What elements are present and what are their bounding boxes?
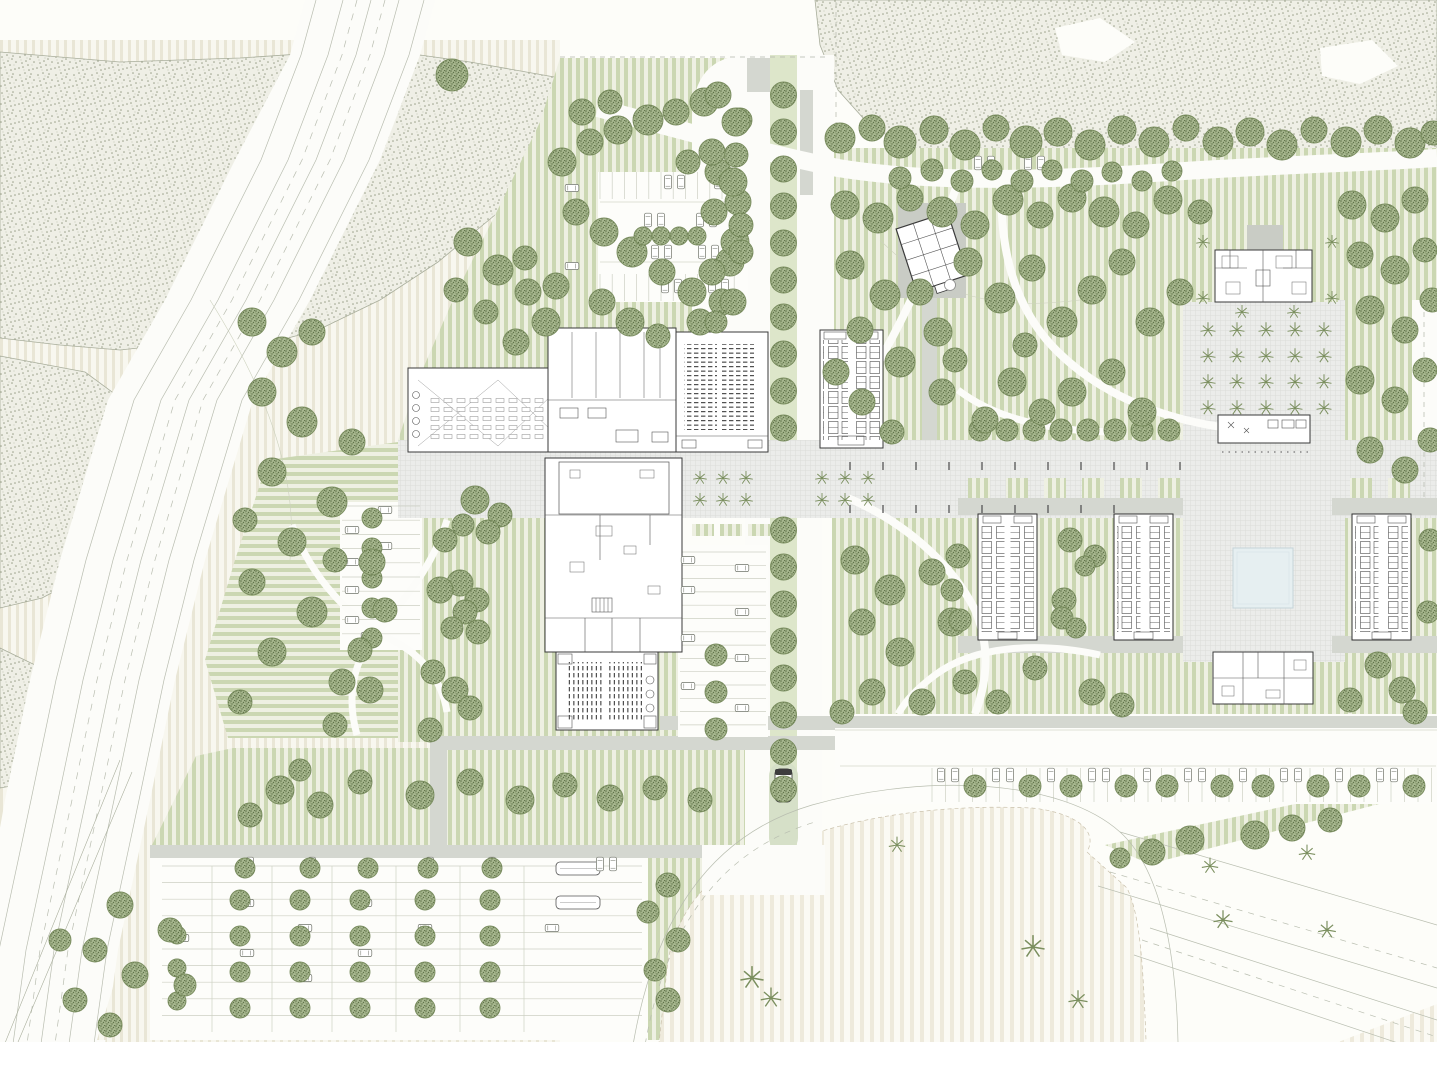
seating-block bbox=[721, 344, 754, 430]
tree bbox=[1110, 693, 1134, 717]
tree bbox=[362, 508, 382, 528]
tree bbox=[1252, 775, 1274, 797]
tree bbox=[174, 974, 196, 996]
tree bbox=[985, 283, 1015, 313]
tree bbox=[83, 938, 107, 962]
tree bbox=[1365, 652, 1391, 678]
tree bbox=[1079, 679, 1105, 705]
hedge bbox=[1044, 478, 1066, 498]
tree bbox=[646, 324, 670, 348]
tree bbox=[705, 718, 727, 740]
parked-car bbox=[937, 768, 944, 782]
parked-car bbox=[1047, 768, 1054, 782]
tree bbox=[1011, 170, 1033, 192]
tree bbox=[886, 638, 914, 666]
canteen-building bbox=[545, 458, 682, 652]
tree bbox=[553, 773, 577, 797]
site-plan-canvas bbox=[0, 0, 1437, 1080]
bench-hedge bbox=[720, 524, 742, 536]
parked-car bbox=[596, 857, 603, 871]
tree bbox=[348, 638, 372, 662]
parked-car bbox=[1198, 768, 1205, 782]
tree bbox=[597, 785, 623, 811]
tree bbox=[633, 105, 663, 135]
tree bbox=[317, 487, 347, 517]
tree bbox=[1167, 279, 1193, 305]
tree bbox=[515, 279, 541, 305]
tree bbox=[299, 319, 325, 345]
plaza-pavilion bbox=[1218, 415, 1310, 443]
tree bbox=[258, 638, 286, 666]
tree bbox=[722, 108, 750, 136]
parked-car bbox=[664, 245, 671, 259]
parked-car bbox=[609, 857, 616, 871]
tree bbox=[616, 308, 644, 336]
masterplan-drawing bbox=[0, 0, 1437, 1080]
tree bbox=[329, 669, 355, 695]
parked-car bbox=[651, 245, 658, 259]
tree bbox=[307, 792, 333, 818]
tree bbox=[771, 230, 797, 256]
tree bbox=[688, 788, 712, 812]
tree bbox=[427, 577, 453, 603]
tree bbox=[1013, 333, 1037, 357]
tree bbox=[323, 548, 347, 572]
parked-car bbox=[1143, 768, 1150, 782]
tree bbox=[943, 348, 967, 372]
tree bbox=[444, 278, 468, 302]
tree bbox=[290, 926, 310, 946]
tree bbox=[1241, 821, 1269, 849]
tree bbox=[859, 679, 885, 705]
parked-car bbox=[1294, 768, 1301, 782]
tree bbox=[466, 620, 490, 644]
parked-car bbox=[1006, 768, 1013, 782]
tree bbox=[656, 873, 680, 897]
tree bbox=[705, 681, 727, 703]
tree bbox=[919, 559, 945, 585]
tree bbox=[230, 926, 250, 946]
parked-car bbox=[345, 586, 359, 593]
workbench-rows bbox=[428, 398, 566, 442]
tree bbox=[482, 858, 502, 878]
tree bbox=[954, 248, 982, 276]
tree bbox=[1050, 419, 1072, 441]
tree bbox=[248, 378, 276, 406]
swimming-pool bbox=[1233, 548, 1293, 608]
tree bbox=[676, 150, 700, 174]
tree bbox=[637, 901, 659, 923]
tree bbox=[1075, 556, 1095, 576]
tree bbox=[1413, 358, 1437, 382]
tree bbox=[563, 199, 589, 225]
seating-block bbox=[684, 344, 717, 430]
tree bbox=[480, 998, 500, 1018]
tree bbox=[705, 644, 727, 666]
tree bbox=[290, 962, 310, 982]
tree bbox=[1348, 775, 1370, 797]
tree bbox=[1371, 204, 1399, 232]
tree bbox=[441, 617, 463, 639]
parked-car bbox=[1280, 768, 1287, 782]
tree bbox=[983, 115, 1009, 141]
tree bbox=[998, 368, 1026, 396]
tree bbox=[483, 255, 513, 285]
tree bbox=[1392, 457, 1418, 483]
parked-car bbox=[240, 949, 254, 956]
parked-car bbox=[735, 654, 749, 661]
tree bbox=[598, 90, 622, 114]
tree bbox=[350, 890, 370, 910]
tree bbox=[849, 609, 875, 635]
tree bbox=[1019, 255, 1045, 281]
parked-car bbox=[681, 634, 695, 641]
tree bbox=[373, 598, 397, 622]
tree bbox=[909, 689, 935, 715]
parked-car bbox=[644, 213, 651, 227]
tree bbox=[1301, 117, 1327, 143]
tree bbox=[996, 419, 1018, 441]
tree bbox=[1128, 398, 1156, 426]
tree bbox=[258, 458, 286, 486]
tree bbox=[323, 713, 347, 737]
tree bbox=[720, 289, 746, 315]
tree bbox=[771, 341, 797, 367]
tree bbox=[1042, 160, 1062, 180]
tree bbox=[289, 759, 311, 781]
tree bbox=[1023, 656, 1047, 680]
tree bbox=[233, 508, 257, 532]
tree bbox=[1392, 317, 1418, 343]
tree bbox=[230, 962, 250, 982]
tree bbox=[1188, 200, 1212, 224]
tree bbox=[1154, 186, 1182, 214]
tree bbox=[1109, 249, 1135, 275]
tree bbox=[964, 775, 986, 797]
tree bbox=[1139, 839, 1165, 865]
bench-hedge bbox=[748, 524, 770, 536]
tree bbox=[1267, 130, 1297, 160]
tree bbox=[1318, 808, 1342, 832]
auditorium bbox=[676, 332, 768, 452]
tree bbox=[649, 259, 675, 285]
tree bbox=[771, 776, 797, 802]
corridor bbox=[1379, 520, 1385, 636]
bus-cab bbox=[775, 769, 792, 775]
tree bbox=[771, 267, 797, 293]
seating-block bbox=[606, 662, 642, 720]
tree bbox=[543, 273, 569, 299]
tree bbox=[652, 227, 670, 245]
apron bbox=[1332, 498, 1437, 515]
tree bbox=[503, 329, 529, 355]
tree bbox=[1158, 419, 1180, 441]
hedge bbox=[1350, 478, 1372, 498]
tree bbox=[699, 139, 725, 165]
margin-bottom bbox=[0, 1042, 1437, 1080]
tree bbox=[1077, 419, 1099, 441]
tree bbox=[1071, 170, 1093, 192]
tree bbox=[238, 308, 266, 336]
tree bbox=[1236, 118, 1264, 146]
parked-car bbox=[1184, 768, 1191, 782]
tree bbox=[1089, 197, 1119, 227]
residential-block-west bbox=[820, 330, 883, 448]
tree bbox=[771, 156, 797, 182]
tree bbox=[1102, 162, 1122, 182]
tree bbox=[656, 988, 680, 1012]
dormitory-block-3 bbox=[1352, 514, 1411, 640]
tree bbox=[1176, 826, 1204, 854]
tree bbox=[771, 665, 797, 691]
gray-strip bbox=[747, 58, 770, 92]
parked-car bbox=[1390, 768, 1397, 782]
tree bbox=[1338, 688, 1362, 712]
tree bbox=[946, 544, 970, 568]
tree bbox=[590, 218, 618, 246]
tree bbox=[480, 962, 500, 982]
tree bbox=[98, 1013, 122, 1037]
tree bbox=[1331, 127, 1361, 157]
tree bbox=[941, 579, 963, 601]
tree bbox=[701, 199, 727, 225]
dormitory-block-2 bbox=[1114, 514, 1173, 640]
tree bbox=[1075, 130, 1105, 160]
tree bbox=[418, 858, 438, 878]
tree bbox=[278, 528, 306, 556]
tree bbox=[457, 769, 483, 795]
tree bbox=[831, 191, 859, 219]
tree bbox=[358, 858, 378, 878]
tree bbox=[461, 486, 489, 514]
tree bbox=[228, 690, 252, 714]
tree bbox=[1382, 387, 1408, 413]
tree bbox=[1413, 238, 1437, 262]
tree bbox=[415, 926, 435, 946]
apron bbox=[958, 498, 1183, 515]
parked-car bbox=[664, 175, 671, 189]
tree bbox=[476, 520, 500, 544]
tree bbox=[63, 988, 87, 1012]
tree bbox=[1418, 428, 1437, 452]
parked-car bbox=[1088, 768, 1095, 782]
tree bbox=[678, 278, 706, 306]
tree bbox=[1058, 378, 1086, 406]
tree bbox=[1010, 126, 1042, 158]
tree bbox=[350, 926, 370, 946]
tree bbox=[436, 59, 468, 91]
tree bbox=[771, 628, 797, 654]
tree bbox=[670, 227, 688, 245]
seating-block bbox=[566, 662, 602, 720]
tree bbox=[1047, 307, 1077, 337]
tree bbox=[1060, 775, 1082, 797]
tree bbox=[663, 99, 689, 125]
hedge bbox=[1158, 478, 1180, 498]
tree bbox=[1136, 308, 1164, 336]
parked-car bbox=[1239, 768, 1246, 782]
parked-car bbox=[974, 156, 981, 170]
tree bbox=[474, 300, 498, 324]
tree bbox=[705, 311, 727, 333]
tree bbox=[823, 359, 849, 385]
tree bbox=[267, 337, 297, 367]
tree bbox=[719, 168, 747, 196]
tree bbox=[927, 197, 957, 227]
tree bbox=[1357, 437, 1383, 463]
hedge bbox=[968, 478, 990, 498]
parked-car bbox=[677, 175, 684, 189]
parked-car bbox=[1376, 768, 1383, 782]
tree bbox=[421, 660, 445, 684]
tree bbox=[1058, 528, 1082, 552]
tree bbox=[1123, 212, 1149, 238]
tree bbox=[506, 786, 534, 814]
parked-car bbox=[358, 949, 372, 956]
tree bbox=[589, 289, 615, 315]
tree bbox=[287, 407, 317, 437]
tree bbox=[107, 892, 133, 918]
tree bbox=[122, 962, 148, 988]
tree bbox=[513, 246, 537, 270]
tree bbox=[705, 82, 731, 108]
tree bbox=[951, 170, 973, 192]
pool-water bbox=[1233, 548, 1293, 608]
gray-strip bbox=[800, 90, 813, 195]
tree bbox=[950, 130, 980, 160]
parked-car bbox=[1335, 768, 1342, 782]
tree bbox=[863, 203, 893, 233]
parked-car bbox=[992, 768, 999, 782]
tree bbox=[929, 379, 955, 405]
tree bbox=[986, 690, 1010, 714]
tree bbox=[230, 890, 250, 910]
tree bbox=[1381, 256, 1409, 284]
tree bbox=[841, 546, 869, 574]
building-outline bbox=[1218, 415, 1310, 443]
parked-car bbox=[681, 556, 695, 563]
tree bbox=[1403, 775, 1425, 797]
tree bbox=[729, 213, 753, 237]
tree bbox=[569, 99, 595, 125]
tree bbox=[458, 696, 482, 720]
tree bbox=[771, 119, 797, 145]
tree bbox=[532, 308, 560, 336]
tree bbox=[604, 116, 632, 144]
tree bbox=[699, 259, 725, 285]
tree bbox=[771, 193, 797, 219]
tree bbox=[348, 770, 372, 794]
tree bbox=[771, 304, 797, 330]
tree bbox=[290, 890, 310, 910]
tree bbox=[1162, 161, 1182, 181]
corridor bbox=[1005, 520, 1011, 636]
tree bbox=[454, 228, 482, 256]
tree bbox=[949, 609, 971, 631]
tree bbox=[982, 160, 1002, 180]
hedge bbox=[1006, 478, 1028, 498]
tree bbox=[1099, 359, 1125, 385]
tree bbox=[1115, 775, 1137, 797]
scene-root bbox=[0, 0, 1437, 1080]
tree bbox=[290, 998, 310, 1018]
parked-car bbox=[565, 184, 579, 191]
tree bbox=[480, 890, 500, 910]
tree bbox=[771, 415, 797, 441]
tree bbox=[415, 890, 435, 910]
tree bbox=[847, 317, 873, 343]
tree bbox=[825, 123, 855, 153]
tree bbox=[771, 591, 797, 617]
tree bbox=[1104, 419, 1126, 441]
hedge bbox=[1082, 478, 1104, 498]
tree bbox=[643, 776, 667, 800]
parked-car bbox=[681, 586, 695, 593]
parked-car bbox=[565, 262, 579, 269]
parked-car bbox=[735, 608, 749, 615]
parked-car bbox=[657, 213, 664, 227]
guest-house-south bbox=[1213, 652, 1313, 704]
avenue-south-stub bbox=[702, 845, 825, 895]
corridor bbox=[848, 338, 856, 442]
tree bbox=[1139, 127, 1169, 157]
hedge bbox=[1120, 478, 1142, 498]
tree bbox=[920, 116, 948, 144]
tree bbox=[884, 126, 916, 158]
tree bbox=[724, 143, 748, 167]
corridor bbox=[1141, 520, 1147, 636]
tree bbox=[644, 959, 666, 981]
tree bbox=[1389, 677, 1415, 703]
tree bbox=[836, 251, 864, 279]
tree bbox=[577, 129, 603, 155]
tree bbox=[1066, 618, 1086, 638]
building-outline bbox=[545, 458, 682, 652]
tree bbox=[830, 700, 854, 724]
tree bbox=[406, 781, 434, 809]
tree bbox=[961, 211, 989, 239]
tree bbox=[859, 115, 885, 141]
tree bbox=[1279, 815, 1305, 841]
tree bbox=[634, 227, 652, 245]
lecture-hall bbox=[556, 652, 658, 730]
tree bbox=[1356, 296, 1384, 324]
tree bbox=[771, 82, 797, 108]
tree bbox=[771, 378, 797, 404]
tree bbox=[359, 549, 385, 575]
parked-car bbox=[698, 245, 705, 259]
tree bbox=[907, 279, 933, 305]
tree bbox=[418, 718, 442, 742]
tree bbox=[266, 776, 294, 804]
tree bbox=[870, 280, 900, 310]
tree bbox=[452, 514, 474, 536]
plinth-feature bbox=[945, 280, 956, 291]
tree bbox=[1044, 118, 1072, 146]
tree bbox=[1307, 775, 1329, 797]
tree bbox=[238, 803, 262, 827]
parked-car bbox=[545, 924, 559, 931]
tree bbox=[953, 670, 977, 694]
tree bbox=[1027, 202, 1053, 228]
tree bbox=[1173, 115, 1199, 141]
tree bbox=[1029, 399, 1055, 425]
tree bbox=[433, 528, 457, 552]
tree bbox=[771, 702, 797, 728]
tree bbox=[1019, 775, 1041, 797]
parked-car bbox=[345, 616, 359, 623]
dormitory-block-1 bbox=[978, 514, 1037, 640]
